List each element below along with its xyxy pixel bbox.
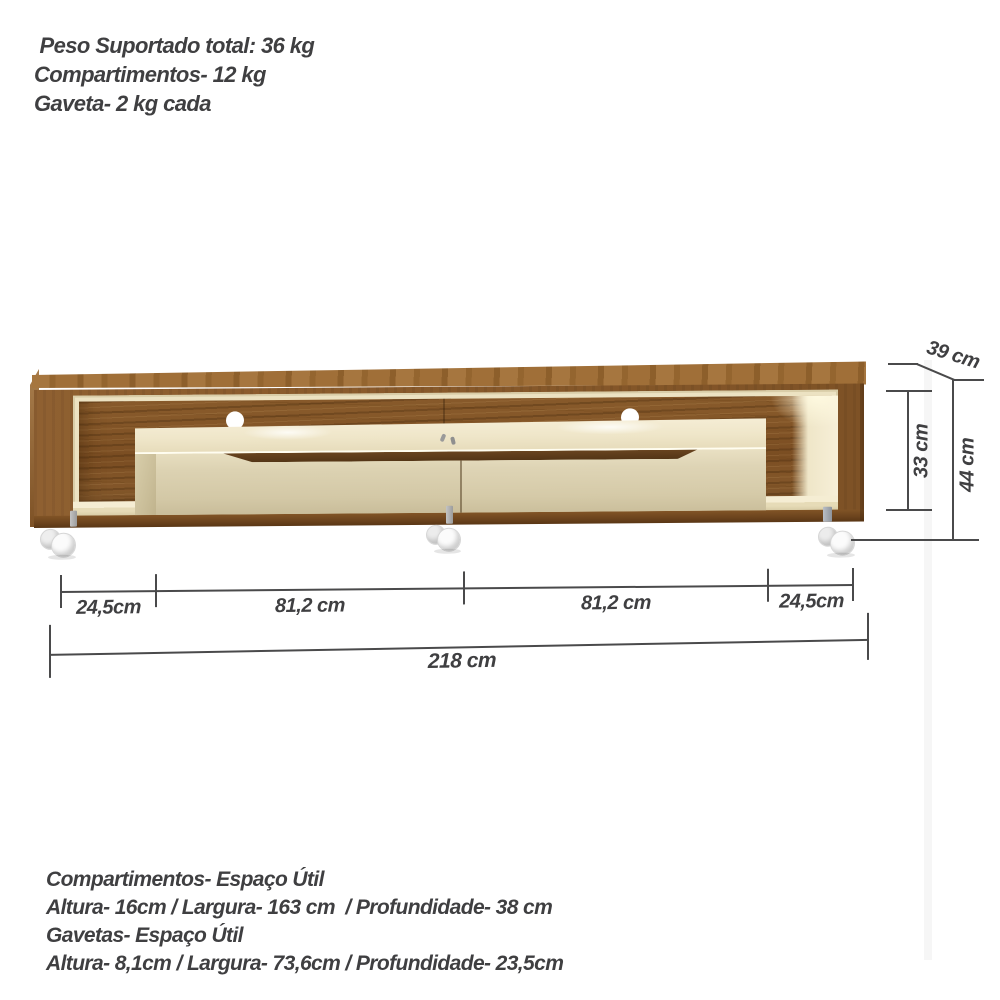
total-width-tick-left	[49, 625, 51, 678]
dimension-total-height-label: 44 cm	[954, 410, 982, 520]
drawers-usable-title: Gavetas- Espaço Útil	[46, 922, 563, 950]
compartments-usable-dims: Altura- 16cm / Largura- 163 cm / Profund…	[46, 894, 563, 922]
caster-stem	[823, 507, 832, 522]
tv-stand	[34, 356, 864, 563]
weight-info-block: Peso Suportado total: 36 kg Compartiment…	[34, 31, 314, 118]
shelf-top	[135, 415, 766, 454]
dimension-depth-tick-left	[888, 363, 918, 365]
right-compartment-light	[770, 396, 838, 429]
weight-total-line: Peso Suportado total: 36 kg	[34, 31, 314, 60]
dimension-inner-height-label: 33 cm	[908, 403, 936, 499]
dimension-inner-height-tick-top	[886, 390, 932, 392]
usable-space-info-block: Compartimentos- Espaço Útil Altura- 16cm…	[46, 866, 563, 978]
dimension-depth-tick-right	[953, 379, 984, 381]
total-width-label: 218 cm	[362, 648, 562, 676]
right-edge-shade	[860, 383, 864, 520]
compartments-usable-title: Compartimentos- Espaço Útil	[46, 866, 563, 894]
weight-compartments-line: Compartimentos- 12 kg	[34, 60, 314, 89]
dimension-depth-label: 39 cm	[909, 332, 998, 379]
dimension-inner-height-tick-bottom	[886, 509, 932, 511]
caster-stem	[70, 511, 77, 527]
drawer-divider	[460, 461, 462, 513]
total-width-tick-right	[867, 613, 869, 660]
dimension-total-width-row: 218 cm	[45, 597, 875, 686]
drawers-usable-dims: Altura- 8,1cm / Largura- 73,6cm / Profun…	[46, 950, 563, 978]
drawer-unit	[135, 415, 766, 515]
caster-stem	[446, 506, 453, 524]
caster-shadow	[434, 549, 461, 554]
weight-drawer-line: Gaveta- 2 kg cada	[34, 89, 314, 118]
dimension-total-height-tick-bottom	[851, 539, 979, 541]
